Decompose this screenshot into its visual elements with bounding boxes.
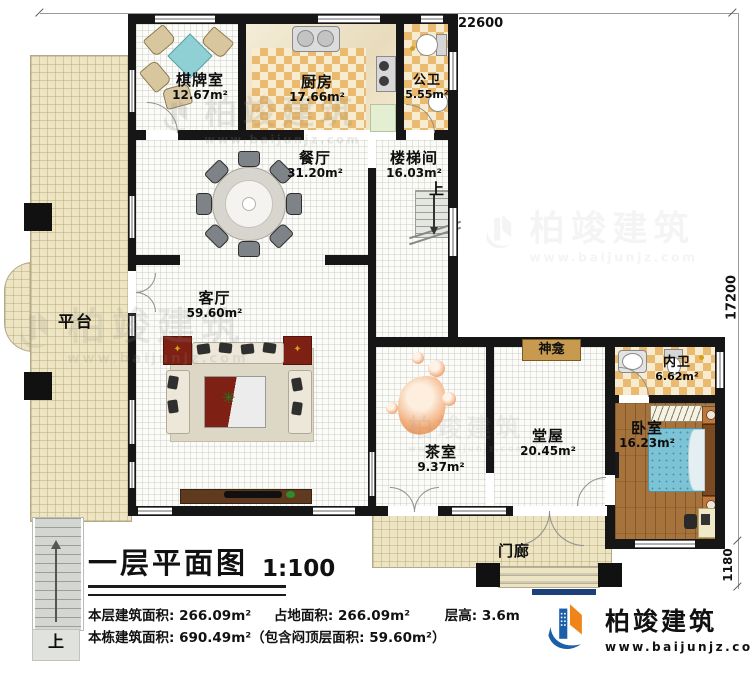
watermark-logo-icon <box>482 211 522 253</box>
room-label-dining: 餐厅 31.20m² <box>270 150 360 180</box>
sofa-pillow <box>291 377 303 392</box>
room-name: 堂屋 <box>502 428 594 445</box>
window <box>129 70 135 112</box>
window <box>138 507 172 515</box>
door-opening <box>583 506 607 516</box>
room-label-tangwu: 堂屋 20.45m² <box>502 428 594 458</box>
sink-bowl <box>317 30 334 47</box>
terrace-floor <box>30 55 132 522</box>
company-logo: 柏竣建筑 www.baijunjz.com <box>543 600 750 656</box>
tea-stool <box>428 360 445 377</box>
dining-table-hub <box>242 197 256 211</box>
chair <box>238 241 260 257</box>
room-label-stairwell: 楼梯间 16.03m² <box>370 150 458 180</box>
drawing-scale: 1:100 <box>262 556 335 582</box>
room-name: 卧室 <box>608 420 686 437</box>
room-name: 内卫 <box>646 356 708 371</box>
room-name: 公卫 <box>399 74 455 89</box>
sofa-pillow <box>167 399 179 413</box>
terrace-label: 平台 <box>58 308 94 332</box>
watermark-url: www.baijunjz.com <box>530 251 698 265</box>
window <box>369 452 375 496</box>
window <box>635 540 695 548</box>
sink-bowl <box>297 30 314 47</box>
side-table: ✦ <box>283 336 312 365</box>
wall <box>396 130 406 140</box>
stairs-arrow <box>433 194 435 228</box>
page-title: 一层平面图 <box>88 540 248 582</box>
room-area: 12.67m² <box>152 89 248 102</box>
chair <box>238 151 260 167</box>
sofa-pillow <box>291 401 303 415</box>
watermark-url: www.baijunjz.com <box>204 134 361 147</box>
window <box>452 507 506 515</box>
room-area: 16.03m² <box>370 167 458 180</box>
sofa-pillow <box>262 342 276 354</box>
exterior-stairs <box>33 518 83 630</box>
watermark-logo-icon <box>160 97 198 136</box>
room-name: 厨房 <box>272 74 362 91</box>
room-area: 5.55m² <box>399 89 455 101</box>
window <box>421 15 443 23</box>
tea-stool <box>412 352 424 364</box>
toilet-bowl <box>416 34 438 56</box>
watermark-text: 柏竣建筑 <box>530 200 698 251</box>
shrine-label: 神龛 <box>538 342 564 357</box>
door-opening <box>605 475 615 505</box>
faucet-dot <box>410 46 415 51</box>
dimension-width: 22600 <box>458 16 503 31</box>
window <box>313 507 355 515</box>
up-label-stairwell: 上 <box>429 178 444 199</box>
room-area: 31.20m² <box>270 167 360 180</box>
window <box>318 15 380 23</box>
room-label-tea: 茶室 9.37m² <box>398 444 484 474</box>
room-area: 17.66m² <box>272 91 362 104</box>
desk-chair <box>684 514 697 529</box>
burner <box>379 61 389 71</box>
burner <box>379 76 389 86</box>
room-label-kitchen: 厨房 17.66m² <box>272 74 362 104</box>
logo-accent-bar <box>532 589 596 595</box>
dimension-line-top <box>40 13 738 14</box>
title-underline <box>88 585 286 596</box>
watermark-logo-icon <box>16 308 60 354</box>
stat-footprint-area: 占地面积: 266.09m² <box>274 608 410 624</box>
dimension-height: 17200 <box>725 268 740 328</box>
wall <box>136 255 180 265</box>
window <box>129 400 135 444</box>
plant: ✳ <box>222 388 235 407</box>
up-label-exterior: 上 <box>48 628 64 652</box>
window <box>716 352 724 388</box>
room-name: 客厅 <box>167 290 262 307</box>
room-area: 6.62m² <box>646 371 708 383</box>
stats-line-1: 本层建筑面积: 266.09m² 占地面积: 266.09m² 层高: 3.6m <box>88 605 520 627</box>
floor-plan: ✦ ✦ ✳ <box>0 0 750 677</box>
room-area: 59.60m² <box>167 307 262 320</box>
title-block: 一层平面图 1:100 本层建筑面积: 266.09m² 占地面积: 266.0… <box>88 540 520 649</box>
dimension-porch: 1180 <box>721 535 735 595</box>
shrine: 神龛 <box>522 339 581 361</box>
window <box>129 462 135 488</box>
kitchen-cabinet <box>370 104 396 132</box>
window <box>155 15 215 23</box>
wall <box>649 395 715 403</box>
tv <box>224 491 282 498</box>
chair <box>196 193 212 215</box>
room-label-neiwei: 内卫 6.62m² <box>646 356 708 383</box>
room-area: 16.23m² <box>608 437 686 450</box>
logo-company-name: 柏竣建筑 <box>605 602 750 638</box>
watermark-url: www.baijunjz.com <box>67 351 248 366</box>
logo-building-icon <box>543 600 597 656</box>
room-label-gongwei: 公卫 5.55m² <box>399 74 455 101</box>
stat-floor-area: 本层建筑面积: 266.09m² <box>88 608 251 624</box>
window <box>449 208 457 256</box>
tea-stool <box>386 402 398 414</box>
wall <box>325 255 368 265</box>
plant-small <box>286 491 295 498</box>
window <box>129 196 135 238</box>
column <box>24 203 52 231</box>
wall <box>368 168 376 337</box>
dresser-item <box>701 514 710 525</box>
stat-floor-height: 层高: 3.6m <box>445 608 520 624</box>
stairs-up-arrowhead <box>51 540 61 549</box>
watermark: 柏竣建筑 www.baijunjz.com <box>482 200 698 265</box>
room-label-living: 客厅 59.60m² <box>167 290 262 320</box>
room-name: 茶室 <box>398 444 484 461</box>
room-area: 20.45m² <box>502 445 594 458</box>
room-area: 9.37m² <box>398 461 484 474</box>
chair <box>286 193 302 215</box>
room-label-qipai: 棋牌室 12.67m² <box>152 72 248 102</box>
room-name: 餐厅 <box>270 150 360 167</box>
room-name: 楼梯间 <box>370 150 458 167</box>
tea-stool <box>442 392 456 406</box>
bed-fold <box>688 429 705 491</box>
stairs-up-arrow <box>55 548 57 622</box>
room-label-bedroom: 卧室 16.23m² <box>608 420 686 450</box>
logo-website: www.baijunjz.com <box>605 640 750 654</box>
stairs-arrowhead <box>430 227 438 235</box>
wall <box>128 130 146 140</box>
wall <box>434 130 458 140</box>
column <box>24 372 52 400</box>
column <box>598 563 622 587</box>
room-name: 棋牌室 <box>152 72 248 89</box>
stats-line-2: 本栋建筑面积: 690.49m²（包含闷顶层面积: 59.60m²） <box>88 627 520 649</box>
